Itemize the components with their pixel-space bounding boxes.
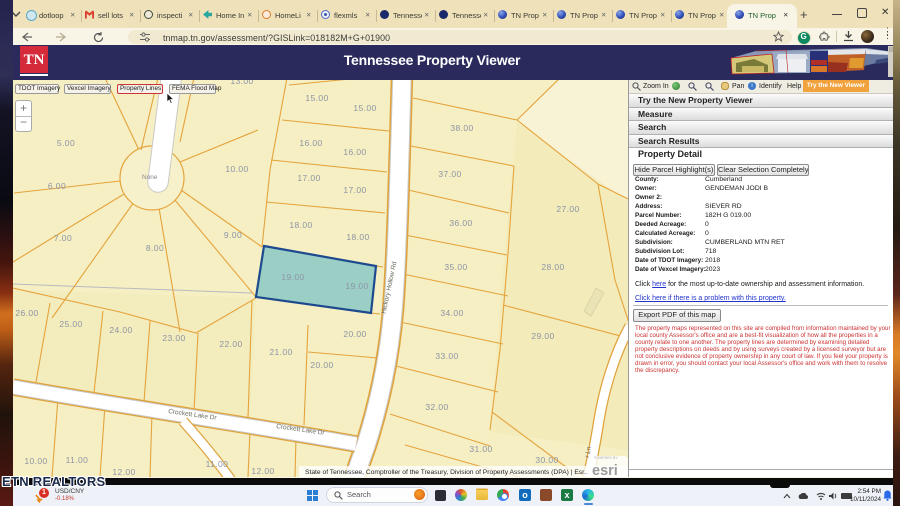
svg-text:31.00: 31.00 xyxy=(469,444,492,454)
svg-text:30.00: 30.00 xyxy=(535,455,558,465)
svg-text:5.00: 5.00 xyxy=(57,138,75,148)
svg-text:20.00: 20.00 xyxy=(343,329,366,339)
svg-text:13.00: 13.00 xyxy=(230,80,253,86)
svg-text:10.00: 10.00 xyxy=(24,456,47,466)
svg-text:9.00: 9.00 xyxy=(224,230,242,240)
svg-text:11.00: 11.00 xyxy=(206,459,229,469)
svg-text:25.00: 25.00 xyxy=(59,319,82,329)
svg-text:34.00: 34.00 xyxy=(440,308,463,318)
svg-text:28.00: 28.00 xyxy=(541,262,564,272)
svg-text:21.00: 21.00 xyxy=(269,347,292,357)
svg-text:8.00: 8.00 xyxy=(146,243,164,253)
svg-text:19.00: 19.00 xyxy=(345,281,368,291)
svg-text:26.00: 26.00 xyxy=(15,308,38,318)
svg-text:State of Tennessee, Comptrolle: State of Tennessee, Comptroller of the T… xyxy=(305,469,590,476)
svg-text:33.00: 33.00 xyxy=(435,351,458,361)
svg-text:None: None xyxy=(142,174,158,181)
svg-text:35.00: 35.00 xyxy=(444,262,467,272)
svg-text:12.00: 12.00 xyxy=(112,467,135,477)
svg-text:27.00: 27.00 xyxy=(556,204,579,214)
svg-text:17.00: 17.00 xyxy=(297,173,320,183)
svg-text:36.00: 36.00 xyxy=(449,218,472,228)
svg-text:16.00: 16.00 xyxy=(299,138,322,148)
svg-text:6.00: 6.00 xyxy=(48,181,66,191)
svg-text:15.00: 15.00 xyxy=(353,103,376,113)
svg-text:10.00: 10.00 xyxy=(225,164,248,174)
svg-text:16.00: 16.00 xyxy=(343,147,366,157)
svg-text:15.00: 15.00 xyxy=(305,93,328,103)
svg-text:17.00: 17.00 xyxy=(343,185,366,195)
svg-text:32.00: 32.00 xyxy=(425,402,448,412)
svg-text:20.00: 20.00 xyxy=(310,360,333,370)
svg-text:19.00: 19.00 xyxy=(281,272,304,282)
svg-text:POWERED BY: POWERED BY xyxy=(594,456,618,460)
svg-text:18.00: 18.00 xyxy=(346,232,369,242)
svg-text:esri: esri xyxy=(592,463,618,477)
svg-text:7.00: 7.00 xyxy=(54,233,72,243)
svg-text:11.00: 11.00 xyxy=(66,455,89,465)
svg-text:23.00: 23.00 xyxy=(162,333,185,343)
svg-text:37.00: 37.00 xyxy=(438,169,461,179)
svg-text:22.00: 22.00 xyxy=(219,339,242,349)
svg-text:24.00: 24.00 xyxy=(109,325,132,335)
svg-text:29.00: 29.00 xyxy=(531,331,554,341)
svg-text:38.00: 38.00 xyxy=(450,123,473,133)
svg-text:18.00: 18.00 xyxy=(289,220,312,230)
svg-text:12.00: 12.00 xyxy=(251,466,274,476)
